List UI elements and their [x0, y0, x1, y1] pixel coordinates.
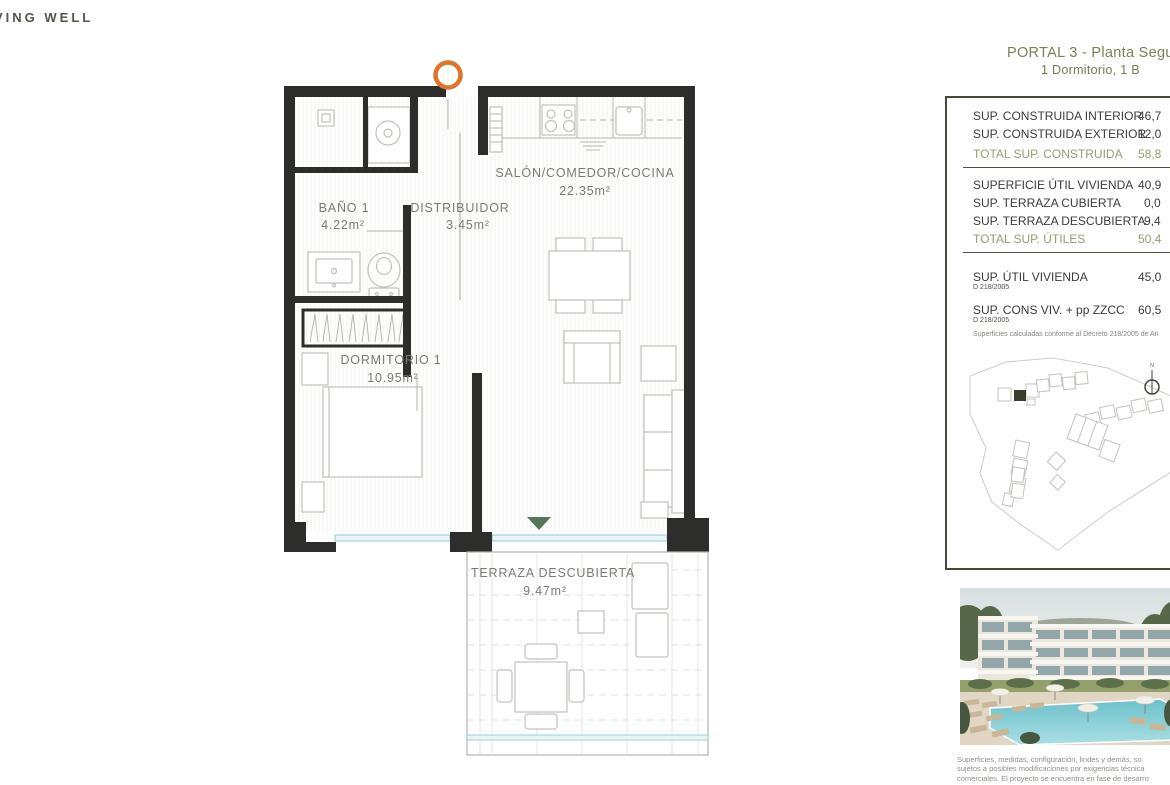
table-row: SUP. ÚTIL VIVIENDA 45,0 [973, 270, 1088, 284]
room-label-dormitorio: DORMITORIO 1 [340, 353, 441, 367]
bed-icon [323, 387, 422, 477]
dining-chair [556, 238, 585, 251]
table-row-total: TOTAL SUP. ÚTILES 50,4 [973, 232, 1085, 246]
entrance-circle-marker [436, 63, 461, 88]
page-title: PORTAL 3 - Planta Segu [1007, 45, 1170, 61]
nightstand [302, 353, 328, 385]
sun-lounger [636, 613, 668, 657]
terrace-table [515, 662, 567, 712]
table-row: SUPERFICIE ÚTIL VIVIENDA 40,9 [973, 178, 1133, 192]
disclaimer-text: Superficies, medidas, configuración, lin… [957, 755, 1149, 783]
compass-north-label: N [1150, 363, 1154, 369]
sofa-back [672, 390, 685, 513]
brand-logo: VING WELL [0, 10, 93, 25]
terrace-chair [525, 644, 557, 659]
dining-chair [556, 300, 585, 313]
floor-plan-drawing: SALÓN/COMEDOR/COCINA 22.35m² BAÑO 1 4.22… [270, 55, 720, 765]
decree-reference: D 218/2005 [973, 317, 1009, 324]
dining-chair [593, 238, 622, 251]
room-label-distribuidor: DISTRIBUIDOR [410, 201, 509, 215]
dining-table [549, 251, 630, 300]
windows-layer [335, 535, 667, 541]
terrace-glass-balustrade [467, 735, 708, 740]
sun-lounger [632, 563, 668, 609]
highlighted-unit [1014, 390, 1026, 401]
table-divider [963, 252, 1170, 253]
apartment-building [978, 616, 1170, 682]
living-room-window [492, 535, 667, 541]
site-plan-drawing: N [958, 352, 1170, 564]
page-subtitle: 1 Dormitorio, 1 B [1041, 63, 1140, 77]
table-row: SUP. CONSTRUIDA INTERIOR 46,7 [973, 109, 1142, 123]
sofa-seats [644, 395, 672, 507]
disclaimer-line: comerciales. El proyecto se encuentra en… [957, 774, 1149, 783]
table-row: SUP. TERRAZA CUBIERTA 0,0 [973, 196, 1121, 210]
room-area-distribuidor: 3.45m² [446, 218, 490, 232]
room-area-terraza: 9.47m² [523, 584, 567, 598]
table-row: SUP. CONSTRUIDA EXTERIOR 12,0 [973, 127, 1146, 141]
room-area-salon: 22.35m² [559, 184, 610, 198]
dining-chair [593, 300, 622, 313]
table-divider [963, 167, 1170, 168]
terrace [467, 552, 708, 755]
room-label-terraza: TERRAZA DESCUBIERTA [471, 566, 635, 580]
terrace-chair [525, 714, 557, 729]
table-footnote: Superficies calculadas conforme al Decre… [973, 331, 1159, 338]
room-label-bano: BAÑO 1 [319, 201, 370, 215]
surface-table-panel: SUP. CONSTRUIDA INTERIOR 46,7 SUP. CONST… [945, 96, 1170, 570]
side-table [641, 346, 676, 381]
disclaimer-line: Superficies, medidas, configuración, lin… [957, 755, 1149, 764]
room-label-salon: SALÓN/COMEDOR/COCINA [495, 165, 674, 180]
room-area-bano: 4.22m² [321, 218, 365, 232]
disclaimer-line: sujetos a posibles modificaciones por ex… [957, 764, 1149, 773]
shower-drain [322, 114, 330, 122]
terrace-side-table [578, 611, 604, 633]
table-row: SUP. TERRAZA DESCUBIERTA 9,4 [973, 214, 1146, 228]
table-row-total: TOTAL SUP. CONSTRUIDA 58,8 [973, 147, 1123, 161]
bedroom-window [335, 535, 450, 541]
building-render-photo [960, 588, 1170, 745]
terrace-chair [497, 670, 512, 702]
terrace-chair [569, 670, 584, 702]
decree-reference: D 218/2005 [973, 284, 1009, 291]
table-row: SUP. CONS VIV. + pp ZZCC 60,5 [973, 303, 1125, 317]
nightstand [302, 482, 324, 512]
brochure-page: VING WELL PORTAL 3 - Planta Segu 1 Dormi… [0, 0, 1170, 785]
sofa-end-table [641, 502, 668, 518]
room-area-dormitorio: 10.95m² [367, 371, 418, 385]
